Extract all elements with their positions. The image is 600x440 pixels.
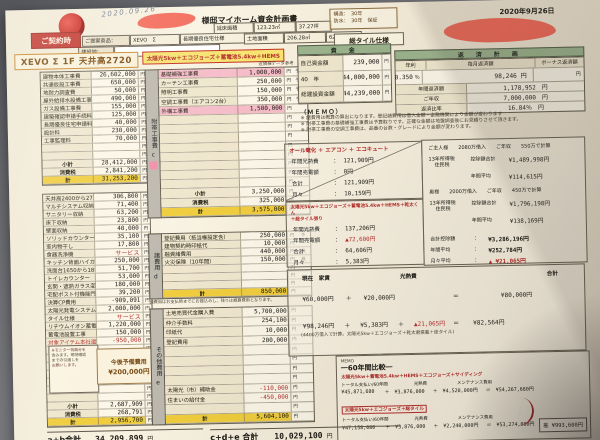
contract-badge: ご契約時 — [32, 33, 80, 48]
difference-badge: 差 ¥993,600円 — [539, 417, 587, 432]
annual-label: 年間返済額 — [396, 84, 467, 94]
monitor-note-line: お願いします。 — [52, 362, 96, 368]
cde-total-label: c+d+e 合計 — [210, 431, 258, 440]
strip-c-label: 附帯工事費 — [149, 118, 156, 148]
sum-avg-value: ¥252,784円 — [488, 245, 522, 255]
p2-avg-value: ¥138,169円 — [510, 215, 544, 225]
p1-header: ご主人様 2080万借入 ご年収 550万で計算 — [428, 141, 584, 151]
stat-row: 年間光熱費：137,206円 — [293, 222, 423, 234]
energy1-title: オール電化 ＋ エアコン ＋ エコキュート — [289, 144, 421, 155]
floor-area-tsubo: 37.27坪 — [296, 21, 332, 33]
photo-of-funding-plan-document: Daiwa House 2020.09.26 様邸マイホーム資金計画書 2020… — [0, 0, 600, 440]
sixty-col3: メンテナンス費用 — [458, 415, 493, 422]
sixty-col3: メンテナンス費用 — [457, 380, 492, 387]
rent-header-current: 現在 家賃 — [302, 274, 330, 283]
stat-row: 年間売電額：▲72,600円 — [293, 233, 423, 245]
p2-total-label: 控除額合計 — [471, 199, 509, 212]
sixty-g2-maintenance: ＋ ¥2,240,000円 — [433, 422, 478, 430]
energy-cost-box-all-electric: オール電化 ＋ エアコン ＋ エコキュート 年間光熱費：121,909円年間売電… — [284, 141, 423, 202]
p1-avg-value: ¥114,615円 — [509, 171, 543, 181]
table-row: 計2,956,700円 — [48, 416, 154, 426]
new-payment: ¥98,246円 — [303, 321, 334, 331]
new-total: ¥82,564円 — [473, 317, 504, 327]
funding-row: 総建設資金額44,239,000円 — [299, 86, 391, 104]
plus-sign: ＋ — [398, 319, 404, 328]
waterproof-line: 防水： 30年 保証 — [334, 16, 394, 24]
energy1-rows: 年間光熱費：121,909円年間売電額：0円合計：121,909円月々：10,1… — [285, 154, 422, 199]
floor-area-value: 123.23㎡ — [254, 21, 296, 33]
strip-c-letter: c — [152, 152, 155, 158]
sixty-col2: 光熱費 — [414, 381, 427, 387]
stat-row: 年間売電額：0円 — [292, 165, 422, 177]
sixty-col1: トータル支払い/60年間 — [341, 382, 388, 389]
ab-total-label: a+b合計 — [47, 434, 81, 440]
land-area-value: 206.28㎡ — [284, 32, 326, 44]
stat-row: 年間光熱費：121,909円 — [291, 154, 421, 166]
rate-header: 年利 — [395, 61, 426, 71]
stat-row: 合計：121,909円 — [292, 176, 422, 188]
table-row: 計31,253,200円 — [43, 175, 149, 185]
ab-total-value: 34,209,899 — [95, 434, 143, 440]
strip-e-label: その他費用 — [154, 347, 161, 377]
energy-cost-box-solar: 太陽光5kw＋エコジョーズ＋蓄電池5.4kw＋HEMS＋乾太くん ＋総タイル張り… — [285, 199, 424, 268]
sixty-g1-utility: ＋ ¥3,876,000 — [384, 388, 424, 396]
rent-utility: ¥20,000円 — [364, 292, 395, 302]
strip-d-label: 諸費用 — [152, 252, 159, 270]
table-row: 計5,604,100円 — [166, 412, 314, 425]
income-label: ご年収 — [396, 94, 467, 104]
rent-current: ¥60,000円 — [302, 294, 333, 304]
sixty-g1-sum: ＝ ¥54,267,680円 — [486, 386, 534, 394]
grand-total-ab: a+b合計 34,209,899 円 — [47, 428, 203, 440]
strip-c-pink-tab — [149, 161, 157, 169]
energy2-rows: 年間光熱費：137,206円年間売電額：▲72,600円合計：64,606円月々… — [287, 222, 424, 267]
cde-total-value: 10,029,100 — [274, 431, 322, 440]
p2-avg-label: 年間平均 — [472, 216, 510, 226]
ab-total-unit: 円 — [147, 433, 153, 440]
stat-row: 月々：5,383円 — [294, 255, 424, 267]
sixty-g1-maintenance: ＋ ¥4,520,000円 — [433, 387, 478, 395]
p1-avg-label: 年間平均 — [471, 172, 509, 182]
document-paper: Daiwa House 2020.09.26 様邸マイホーム資金計画書 2020… — [5, 0, 600, 440]
repayment-table: 年利 毎月返済額 ボーナス返済額 0.350 ％ 98,246 円 円 年間返済… — [394, 56, 585, 115]
cde-total-unit: 円 — [326, 431, 332, 440]
stat-row: 合計：64,606円 — [293, 244, 423, 256]
plus-sign: ＋ — [346, 293, 352, 302]
sixty-col1: トータル支払い/60年間 — [342, 417, 389, 424]
strip-d-letter: d — [154, 274, 158, 280]
grand-total-cde: c+d+e 合計 10,029,100 円 — [210, 425, 400, 440]
construction-cost-table: 建物本体工事費26,602,000円共通仮設工事費650,000円地耐力調査費5… — [40, 70, 150, 186]
new-utility: ¥5,383円 — [360, 320, 388, 330]
plus-sign: ＋ — [344, 320, 350, 329]
sum-value: ¥3,286,196円 — [488, 234, 529, 244]
land-area-label: 土地面積 — [244, 33, 284, 45]
monitor-note-box: ※モニター特典分を 含みます。現地確認 までの引渡しを お願いします。 — [48, 345, 99, 394]
rent-header-total: 合計 — [547, 269, 558, 277]
deduction-label-2: 住民税 — [435, 162, 450, 168]
loan-deduction-box: ご主人様 2080万借入 ご年収 550万で計算 13年所得税住民税 控除額合計… — [421, 136, 588, 265]
sum-avg-label: 年間平均 — [430, 246, 474, 256]
spec-value: 長期優良住宅仕様 — [180, 32, 248, 44]
stat-row: 月々：10,159円 — [292, 187, 422, 199]
memo-notes: ※ 諸費用は概算の算出になります。登記諸費用は借入金額・金融機関により金額が変わ… — [301, 110, 589, 134]
rent-total: ¥80,000円 — [501, 290, 532, 300]
redaction-scribble-2 — [444, 17, 556, 43]
rent-comparison-box: 現在 家賃 光熱費 合計 ¥60,000円 ＋ ¥20,000円 ＝ ¥80,0… — [287, 263, 587, 356]
bonus-value: 円 — [534, 67, 584, 81]
p2-total-value: ¥1,796,198円 — [509, 198, 550, 211]
bonus-header: ボーナス返済額 — [535, 57, 583, 67]
rate-unit: ％ — [413, 71, 423, 84]
deduction-label-2: 住民税 — [435, 206, 450, 212]
equals-sign: ＝ — [453, 318, 459, 327]
issue-date: 2020年9月26日 — [499, 6, 554, 17]
funding-table: 自己資金額239,000円40 年44,000,000円総建設資金額44,239… — [297, 53, 392, 104]
sixty-option2-title: 太陽光5kw＋エコジョーズ＋総タイル — [342, 405, 427, 415]
sixty-g1-total: ¥45,871,680 — [341, 389, 374, 397]
deduction-credit: ▲21,065円 — [414, 318, 445, 328]
p1-total-label: 控除額合計 — [470, 155, 508, 168]
structure-warranty-box: 構造： 30年 防水： 30年 保証 — [329, 7, 397, 29]
p1-total-value: ¥1,489,998円 — [508, 154, 549, 167]
reserve-note-amount: ¥200,000円 — [108, 365, 149, 376]
rate-value: 0.350 — [396, 71, 413, 84]
sum-label: 合計控除額 — [430, 235, 474, 245]
monthly-value: 98,246 円 — [423, 68, 534, 83]
rent-header-utility: 光熱費 — [400, 272, 417, 280]
model-badge: XEVO Σ 1F 天井高2720 — [14, 52, 138, 71]
sixty-col2: 光熱費 — [414, 416, 427, 422]
equals-sign: ＝ — [453, 291, 459, 300]
p2-header: 奥様 2000万借入 ご年収 450万で計算 — [429, 185, 585, 195]
strip-e-letter: e — [156, 381, 160, 387]
